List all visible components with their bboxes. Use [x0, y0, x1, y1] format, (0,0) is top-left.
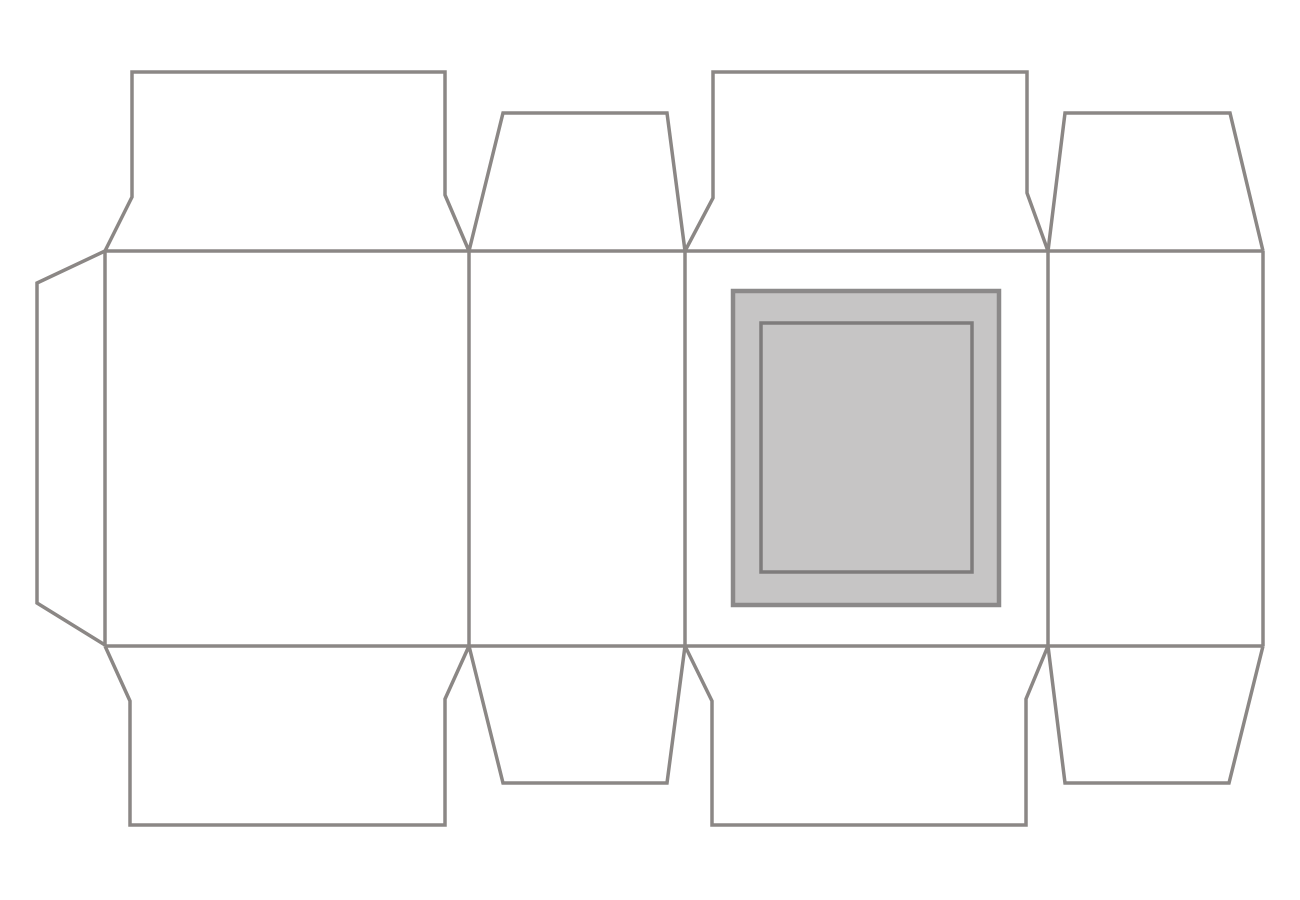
bottom-flap-4-outline: [1048, 646, 1263, 783]
box-dieline-drawing: [0, 0, 1300, 900]
top-flap-3-outline: [685, 72, 1048, 251]
window-outer-rect: [733, 291, 999, 605]
top-flap-4-outline: [1048, 113, 1263, 251]
bottom-flap-2-outline: [469, 646, 685, 783]
top-flap-2-outline: [469, 113, 685, 251]
bottom-flap-3-outline: [685, 646, 1048, 825]
glue-tab-outline: [37, 251, 105, 645]
dieline-canvas: [0, 0, 1300, 900]
bottom-flap-1-outline: [105, 646, 469, 825]
top-flap-1-outline: [105, 72, 469, 251]
